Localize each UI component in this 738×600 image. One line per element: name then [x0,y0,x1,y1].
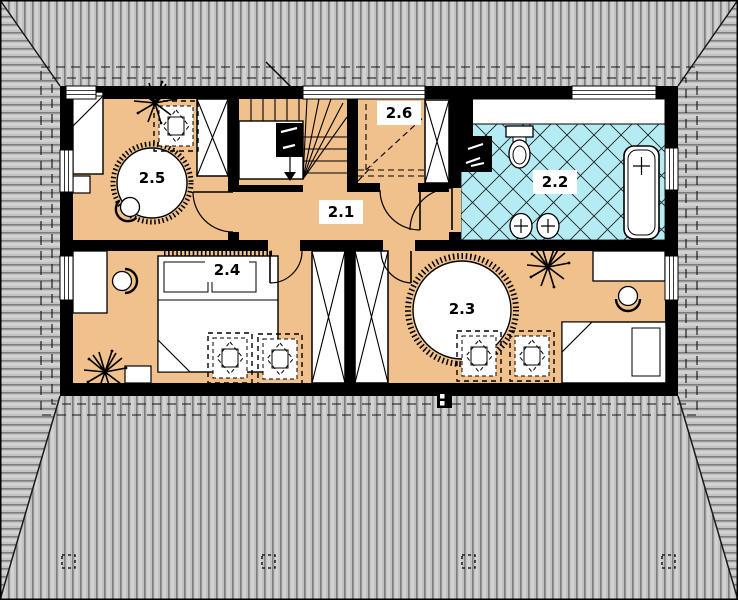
svg-text:2.5: 2.5 [139,169,166,187]
svg-text:2.2: 2.2 [542,173,569,191]
desk [73,251,107,313]
bathroom-counter [461,99,665,124]
window [572,86,656,99]
floor-plan-drawing: 2.1 2.2 2.3 2.4 2.5 2.6 [0,0,738,600]
room-label-2-1: 2.1 [319,200,363,224]
wardrobe-symbol [197,99,228,176]
roof-plane-south [0,396,738,600]
roof-plane-north [0,0,738,86]
svg-text:2.6: 2.6 [386,104,413,122]
window [60,256,73,300]
room-label-2-4: 2.4 [205,258,249,282]
room-bathroom [461,99,665,240]
svg-text:2.3: 2.3 [449,300,476,318]
bed-single [562,322,666,383]
room-label-2-2: 2.2 [533,170,577,194]
room-label-2-6: 2.6 [377,101,421,125]
window [66,86,96,99]
room-label-2-5: 2.5 [130,166,174,190]
roof-vent [437,391,452,408]
toilet [506,126,533,168]
floor-plan: 2.1 2.2 2.3 2.4 2.5 2.6 [0,0,738,600]
washbasin [510,214,532,239]
nightstand [73,176,90,193]
svg-text:2.1: 2.1 [328,203,355,221]
window [665,256,678,300]
window [303,86,425,99]
desk [593,251,665,281]
room-label-2-3: 2.3 [440,297,484,321]
washbasin [537,214,559,239]
bathtub [624,146,659,239]
window [60,150,73,192]
nightstand [125,366,151,383]
chimney-block [461,136,492,172]
wardrobe-symbol [425,100,449,183]
chimney-stub-wall [461,99,473,138]
bed-single [73,92,103,174]
svg-text:2.4: 2.4 [214,261,241,279]
window [665,148,678,190]
